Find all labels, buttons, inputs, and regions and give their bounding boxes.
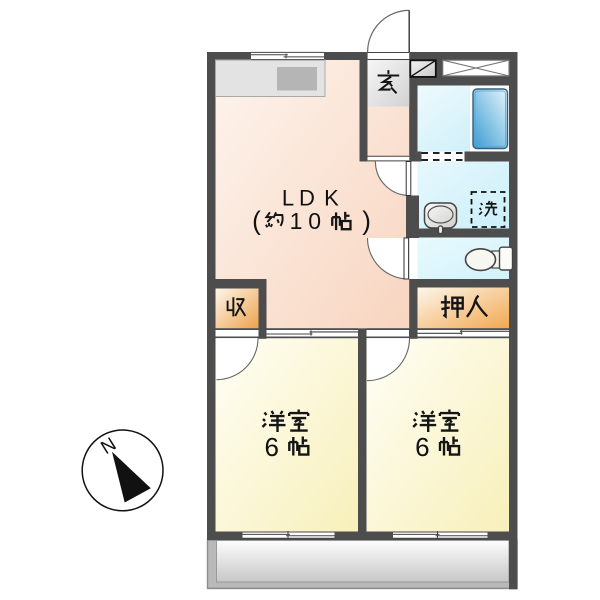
svg-text:L: L: [282, 186, 294, 211]
svg-text:6: 6: [264, 432, 278, 462]
svg-text:K: K: [324, 186, 339, 211]
svg-text:0: 0: [308, 208, 321, 234]
svg-text:6: 6: [415, 432, 429, 462]
svg-text:): ): [362, 206, 371, 236]
svg-text:(: (: [252, 206, 261, 236]
svg-text:D: D: [299, 186, 315, 211]
svg-text:1: 1: [290, 208, 303, 234]
